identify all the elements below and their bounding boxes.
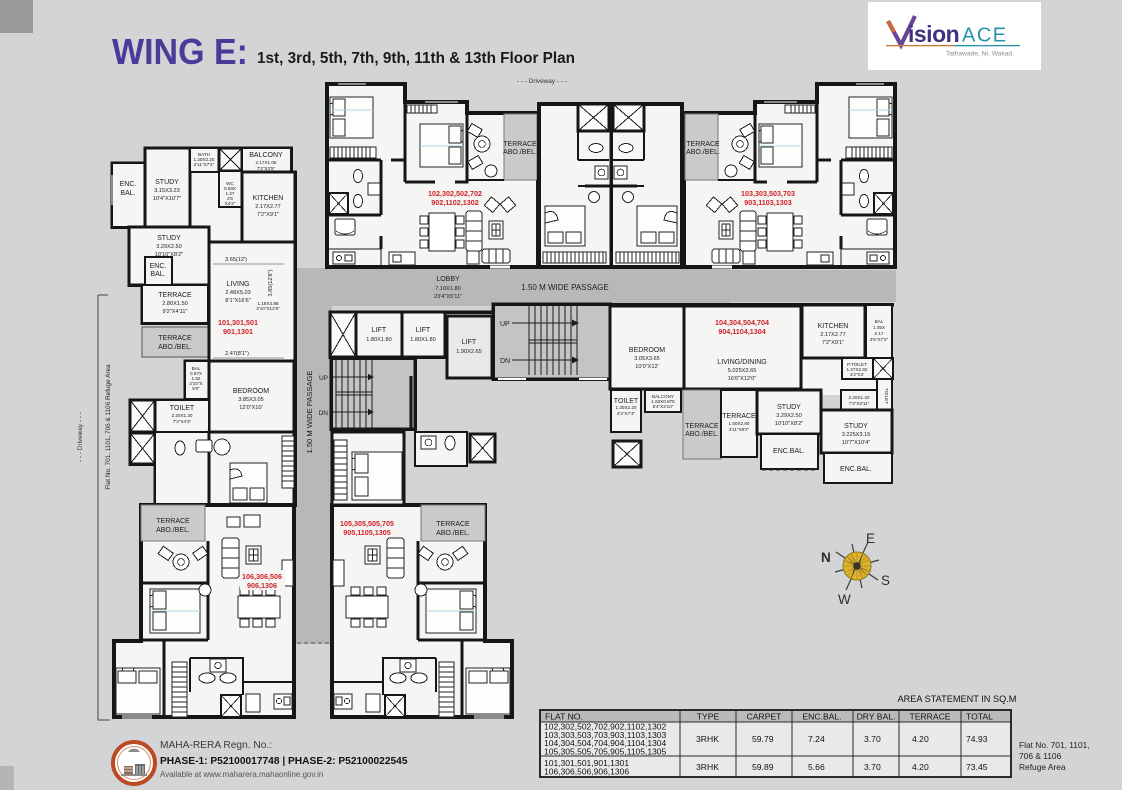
svg-text:TERRACE: TERRACE <box>503 141 537 148</box>
svg-text:1.80X1.80: 1.80X1.80 <box>410 337 436 343</box>
svg-text:ENC.: ENC. <box>150 263 167 270</box>
svg-text:TERRACE: TERRACE <box>158 292 192 299</box>
svg-text:2.17X1.05: 2.17X1.05 <box>256 160 277 165</box>
svg-text:3.70: 3.70 <box>864 762 881 772</box>
svg-text:2.47(8'1"): 2.47(8'1") <box>225 351 249 357</box>
svg-text:AREA STATEMENT IN SQ.M: AREA STATEMENT IN SQ.M <box>898 694 1017 704</box>
svg-text:X4'2": X4'2" <box>225 201 236 206</box>
svg-text:1.05X: 1.05X <box>873 325 885 330</box>
svg-text:TOILET: TOILET <box>170 405 195 412</box>
svg-text:FLAT NO.: FLAT NO. <box>545 712 583 722</box>
svg-text:CARPET: CARPET <box>747 712 783 722</box>
svg-text:STUDY: STUDY <box>777 404 801 411</box>
svg-text:10'7"X10'4": 10'7"X10'4" <box>842 440 871 446</box>
svg-text:902,1102,1302: 902,1102,1302 <box>431 198 479 207</box>
svg-text:BALCONY: BALCONY <box>249 152 283 159</box>
svg-text:ision: ision <box>908 21 959 47</box>
svg-text:ENC.BAL.: ENC.BAL. <box>802 712 841 722</box>
svg-text:TERRACE: TERRACE <box>686 141 720 148</box>
svg-text:BEDROOM: BEDROOM <box>233 388 269 395</box>
svg-text:ENC.: ENC. <box>120 181 137 188</box>
svg-text:5.025X3.65: 5.025X3.65 <box>728 368 757 374</box>
svg-text:2.48X5.03: 2.48X5.03 <box>225 290 251 296</box>
svg-text:106,306,506: 106,306,506 <box>242 572 282 581</box>
svg-text:10'4"X10'7": 10'4"X10'7" <box>153 196 182 202</box>
svg-text:2.17X2.77: 2.17X2.77 <box>255 204 281 210</box>
svg-text:STUDY: STUDY <box>155 179 179 186</box>
svg-text:8'1"X16'6": 8'1"X16'6" <box>225 298 250 304</box>
svg-text:- - - Driveway - - -: - - - Driveway - - - <box>517 78 567 85</box>
svg-text:TOILET: TOILET <box>884 388 889 404</box>
svg-text:105,305,505,705,905,1105,1305: 105,305,505,705,905,1105,1305 <box>544 746 667 756</box>
svg-text:3RHK: 3RHK <box>696 734 719 744</box>
svg-text:59.79: 59.79 <box>752 734 774 744</box>
svg-text:3'5"X7'2": 3'5"X7'2" <box>870 337 889 342</box>
svg-text:TERRACE: TERRACE <box>436 521 470 528</box>
svg-text:906,1306: 906,1306 <box>247 581 277 590</box>
svg-text:STUDY: STUDY <box>157 235 181 242</box>
svg-text:1.30X2.20: 1.30X2.20 <box>616 405 637 410</box>
svg-text:7'2"X9'1": 7'2"X9'1" <box>822 340 844 346</box>
svg-text:106,306,506,906,1306: 106,306,506,906,1306 <box>544 767 629 777</box>
svg-text:3.225X3.15: 3.225X3.15 <box>842 432 871 438</box>
svg-text:MAHA-RERA Regn. No.:: MAHA-RERA Regn. No.: <box>160 740 272 751</box>
svg-text:4'11"X9'2": 4'11"X9'2" <box>729 427 750 432</box>
svg-text:1.80X1.80: 1.80X1.80 <box>366 337 392 343</box>
svg-text:BAL: BAL <box>875 319 884 324</box>
svg-text:LIVING: LIVING <box>227 281 250 288</box>
svg-text:Tathawade, Nr. Wakad: Tathawade, Nr. Wakad <box>946 51 1012 58</box>
svg-text:TERRACE: TERRACE <box>685 423 719 430</box>
svg-text:UP: UP <box>500 321 510 328</box>
svg-text:ABO./BEL.: ABO./BEL. <box>685 431 719 438</box>
svg-text:LOBBY: LOBBY <box>436 276 460 283</box>
svg-text:ABO./BEL.: ABO./BEL. <box>436 530 470 537</box>
svg-text:73.45: 73.45 <box>966 762 988 772</box>
svg-text:903,1103,1303: 903,1103,1303 <box>744 198 792 207</box>
svg-text:BEDROOM: BEDROOM <box>629 347 665 354</box>
svg-text:9'2"X4'11": 9'2"X4'11" <box>163 309 188 315</box>
svg-text:3.65(12'): 3.65(12') <box>225 257 247 263</box>
svg-text:2.20X1.20: 2.20X1.20 <box>849 395 870 400</box>
svg-text:UP: UP <box>319 375 328 382</box>
svg-text:Refuge Area: Refuge Area <box>1019 762 1066 772</box>
svg-text:23'4"X5'11": 23'4"X5'11" <box>434 294 462 300</box>
svg-text:TOILET: TOILET <box>614 398 639 405</box>
svg-text:102,302,502,702: 102,302,502,702 <box>428 189 482 198</box>
svg-text:BAL.: BAL. <box>150 271 165 278</box>
svg-text:LIFT: LIFT <box>372 327 387 334</box>
svg-text:ABO./BEL.: ABO./BEL. <box>686 149 720 156</box>
svg-text:4'2"X3': 4'2"X3' <box>850 372 864 377</box>
svg-text:ACE: ACE <box>962 25 1008 47</box>
svg-text:TERRACE: TERRACE <box>722 413 756 420</box>
svg-text:12'0"X10': 12'0"X10' <box>239 405 262 411</box>
svg-text:4'3"X7'3": 4'3"X7'3" <box>617 411 636 416</box>
svg-text:TERRACE: TERRACE <box>158 335 192 342</box>
svg-text:2.80X1.50: 2.80X1.50 <box>162 301 188 307</box>
svg-text:74.93: 74.93 <box>966 734 988 744</box>
svg-text:904,1104,1304: 904,1104,1304 <box>718 327 766 336</box>
svg-text:3.29X2.50: 3.29X2.50 <box>156 244 182 250</box>
svg-text:3.15X3.23: 3.15X3.23 <box>154 188 180 194</box>
svg-text:WING E:: WING E: <box>112 31 248 72</box>
svg-text:STUDY: STUDY <box>844 423 868 430</box>
svg-text:7'2"X9'1": 7'2"X9'1" <box>257 212 279 218</box>
svg-text:1.50 M WIDE PASSAGE: 1.50 M WIDE PASSAGE <box>305 371 314 454</box>
svg-text:905,1105,1305: 905,1105,1305 <box>343 528 391 537</box>
svg-text:2.17X2.77: 2.17X2.77 <box>820 332 846 338</box>
svg-text:5'4"X2'10": 5'4"X2'10" <box>653 404 674 409</box>
svg-text:LIFT: LIFT <box>462 339 477 346</box>
svg-text:ENC.BAL.: ENC.BAL. <box>840 466 872 473</box>
svg-text:2.20X1.30: 2.20X1.30 <box>172 413 193 418</box>
svg-text:- - - Driveway - - -: - - - Driveway - - - <box>77 412 84 462</box>
svg-text:ENC.BAL.: ENC.BAL. <box>773 448 805 455</box>
svg-text:DN: DN <box>500 358 510 365</box>
svg-text:2.17: 2.17 <box>875 331 884 336</box>
svg-text:DN: DN <box>319 410 329 417</box>
svg-text:10'10"X8'2": 10'10"X8'2" <box>155 252 184 258</box>
svg-text:901,1301: 901,1301 <box>223 327 253 336</box>
svg-text:5.66: 5.66 <box>808 762 825 772</box>
svg-text:LIFT: LIFT <box>416 327 431 334</box>
svg-text:7'3"X4'3": 7'3"X4'3" <box>173 419 192 424</box>
svg-text:PHASE-1: P52100017748 | PHAS: PHASE-1: P52100017748 | PHASE-2: P521000… <box>160 756 408 767</box>
svg-text:59.89: 59.89 <box>752 762 774 772</box>
svg-text:1.50 M WIDE PASSAGE: 1.50 M WIDE PASSAGE <box>521 283 608 292</box>
svg-text:5'0": 5'0" <box>192 386 200 391</box>
svg-text:10'10"X8'2": 10'10"X8'2" <box>775 421 804 427</box>
svg-text:TYPE: TYPE <box>697 712 720 722</box>
svg-text:N: N <box>821 550 831 565</box>
svg-text:Available at www.maharera.maha: Available at www.maharera.mahaonline.gov… <box>160 770 323 779</box>
svg-text:BAL.: BAL. <box>120 190 135 197</box>
svg-text:3.29X2.50: 3.29X2.50 <box>776 413 802 419</box>
svg-text:3.85X3.05: 3.85X3.05 <box>238 397 264 403</box>
svg-text:7'2"X3'5": 7'2"X3'5" <box>257 166 276 171</box>
svg-text:DRY BAL.: DRY BAL. <box>857 712 896 722</box>
svg-text:3.70: 3.70 <box>864 734 881 744</box>
svg-text:706 & 1106: 706 & 1106 <box>1019 751 1062 761</box>
svg-text:KITCHEN: KITCHEN <box>253 195 284 202</box>
svg-text:1.90X2.65: 1.90X2.65 <box>456 349 482 355</box>
svg-text:TOTAL: TOTAL <box>966 712 993 722</box>
svg-text:4.20: 4.20 <box>912 734 929 744</box>
svg-text:S: S <box>881 573 890 588</box>
svg-text:101,301,501: 101,301,501 <box>218 318 258 327</box>
svg-text:104,304,504,704: 104,304,504,704 <box>715 318 769 327</box>
svg-text:ABO./BEL.: ABO./BEL. <box>156 527 190 534</box>
svg-text:3.85(12'8"): 3.85(12'8") <box>268 269 274 296</box>
svg-text:E: E <box>866 531 875 546</box>
svg-text:1.50X2.80: 1.50X2.80 <box>729 421 750 426</box>
svg-text:KITCHEN: KITCHEN <box>818 323 849 330</box>
svg-text:ABO./BEL.: ABO./BEL. <box>503 149 537 156</box>
svg-text:2'11"X7'2": 2'11"X7'2" <box>194 162 215 167</box>
svg-text:10'0"X12': 10'0"X12' <box>635 364 658 370</box>
svg-text:1st, 3rd, 5th, 7th, 9th, 11th: 1st, 3rd, 5th, 7th, 9th, 11th & 13th Flo… <box>257 50 575 67</box>
svg-text:Flat No. 701, 1101, 706 & 1106: Flat No. 701, 1101, 706 & 1106 Refuge Ar… <box>105 364 112 490</box>
svg-text:7.10X1.80: 7.10X1.80 <box>435 286 461 292</box>
svg-text:TERRACE: TERRACE <box>909 712 950 722</box>
svg-text:3'10"X12'8": 3'10"X12'8" <box>256 306 280 311</box>
svg-text:105,305,505,705: 105,305,505,705 <box>340 519 394 528</box>
svg-text:3RHK: 3RHK <box>696 762 719 772</box>
svg-text:W: W <box>838 592 851 607</box>
svg-text:3.05X3.65: 3.05X3.65 <box>634 356 660 362</box>
svg-text:ABO./BEL.: ABO./BEL. <box>158 344 192 351</box>
svg-text:LIVING/DINING: LIVING/DINING <box>717 359 766 366</box>
svg-text:Flat No. 701, 1101,: Flat No. 701, 1101, <box>1019 740 1090 750</box>
svg-text:7'3"X3'11": 7'3"X3'11" <box>849 401 870 406</box>
svg-text:TERRACE: TERRACE <box>156 518 190 525</box>
svg-text:7.24: 7.24 <box>808 734 825 744</box>
svg-text:103,303,503,703: 103,303,503,703 <box>741 189 795 198</box>
svg-text:4.20: 4.20 <box>912 762 929 772</box>
svg-text:16'6"X12'0": 16'6"X12'0" <box>728 376 757 382</box>
